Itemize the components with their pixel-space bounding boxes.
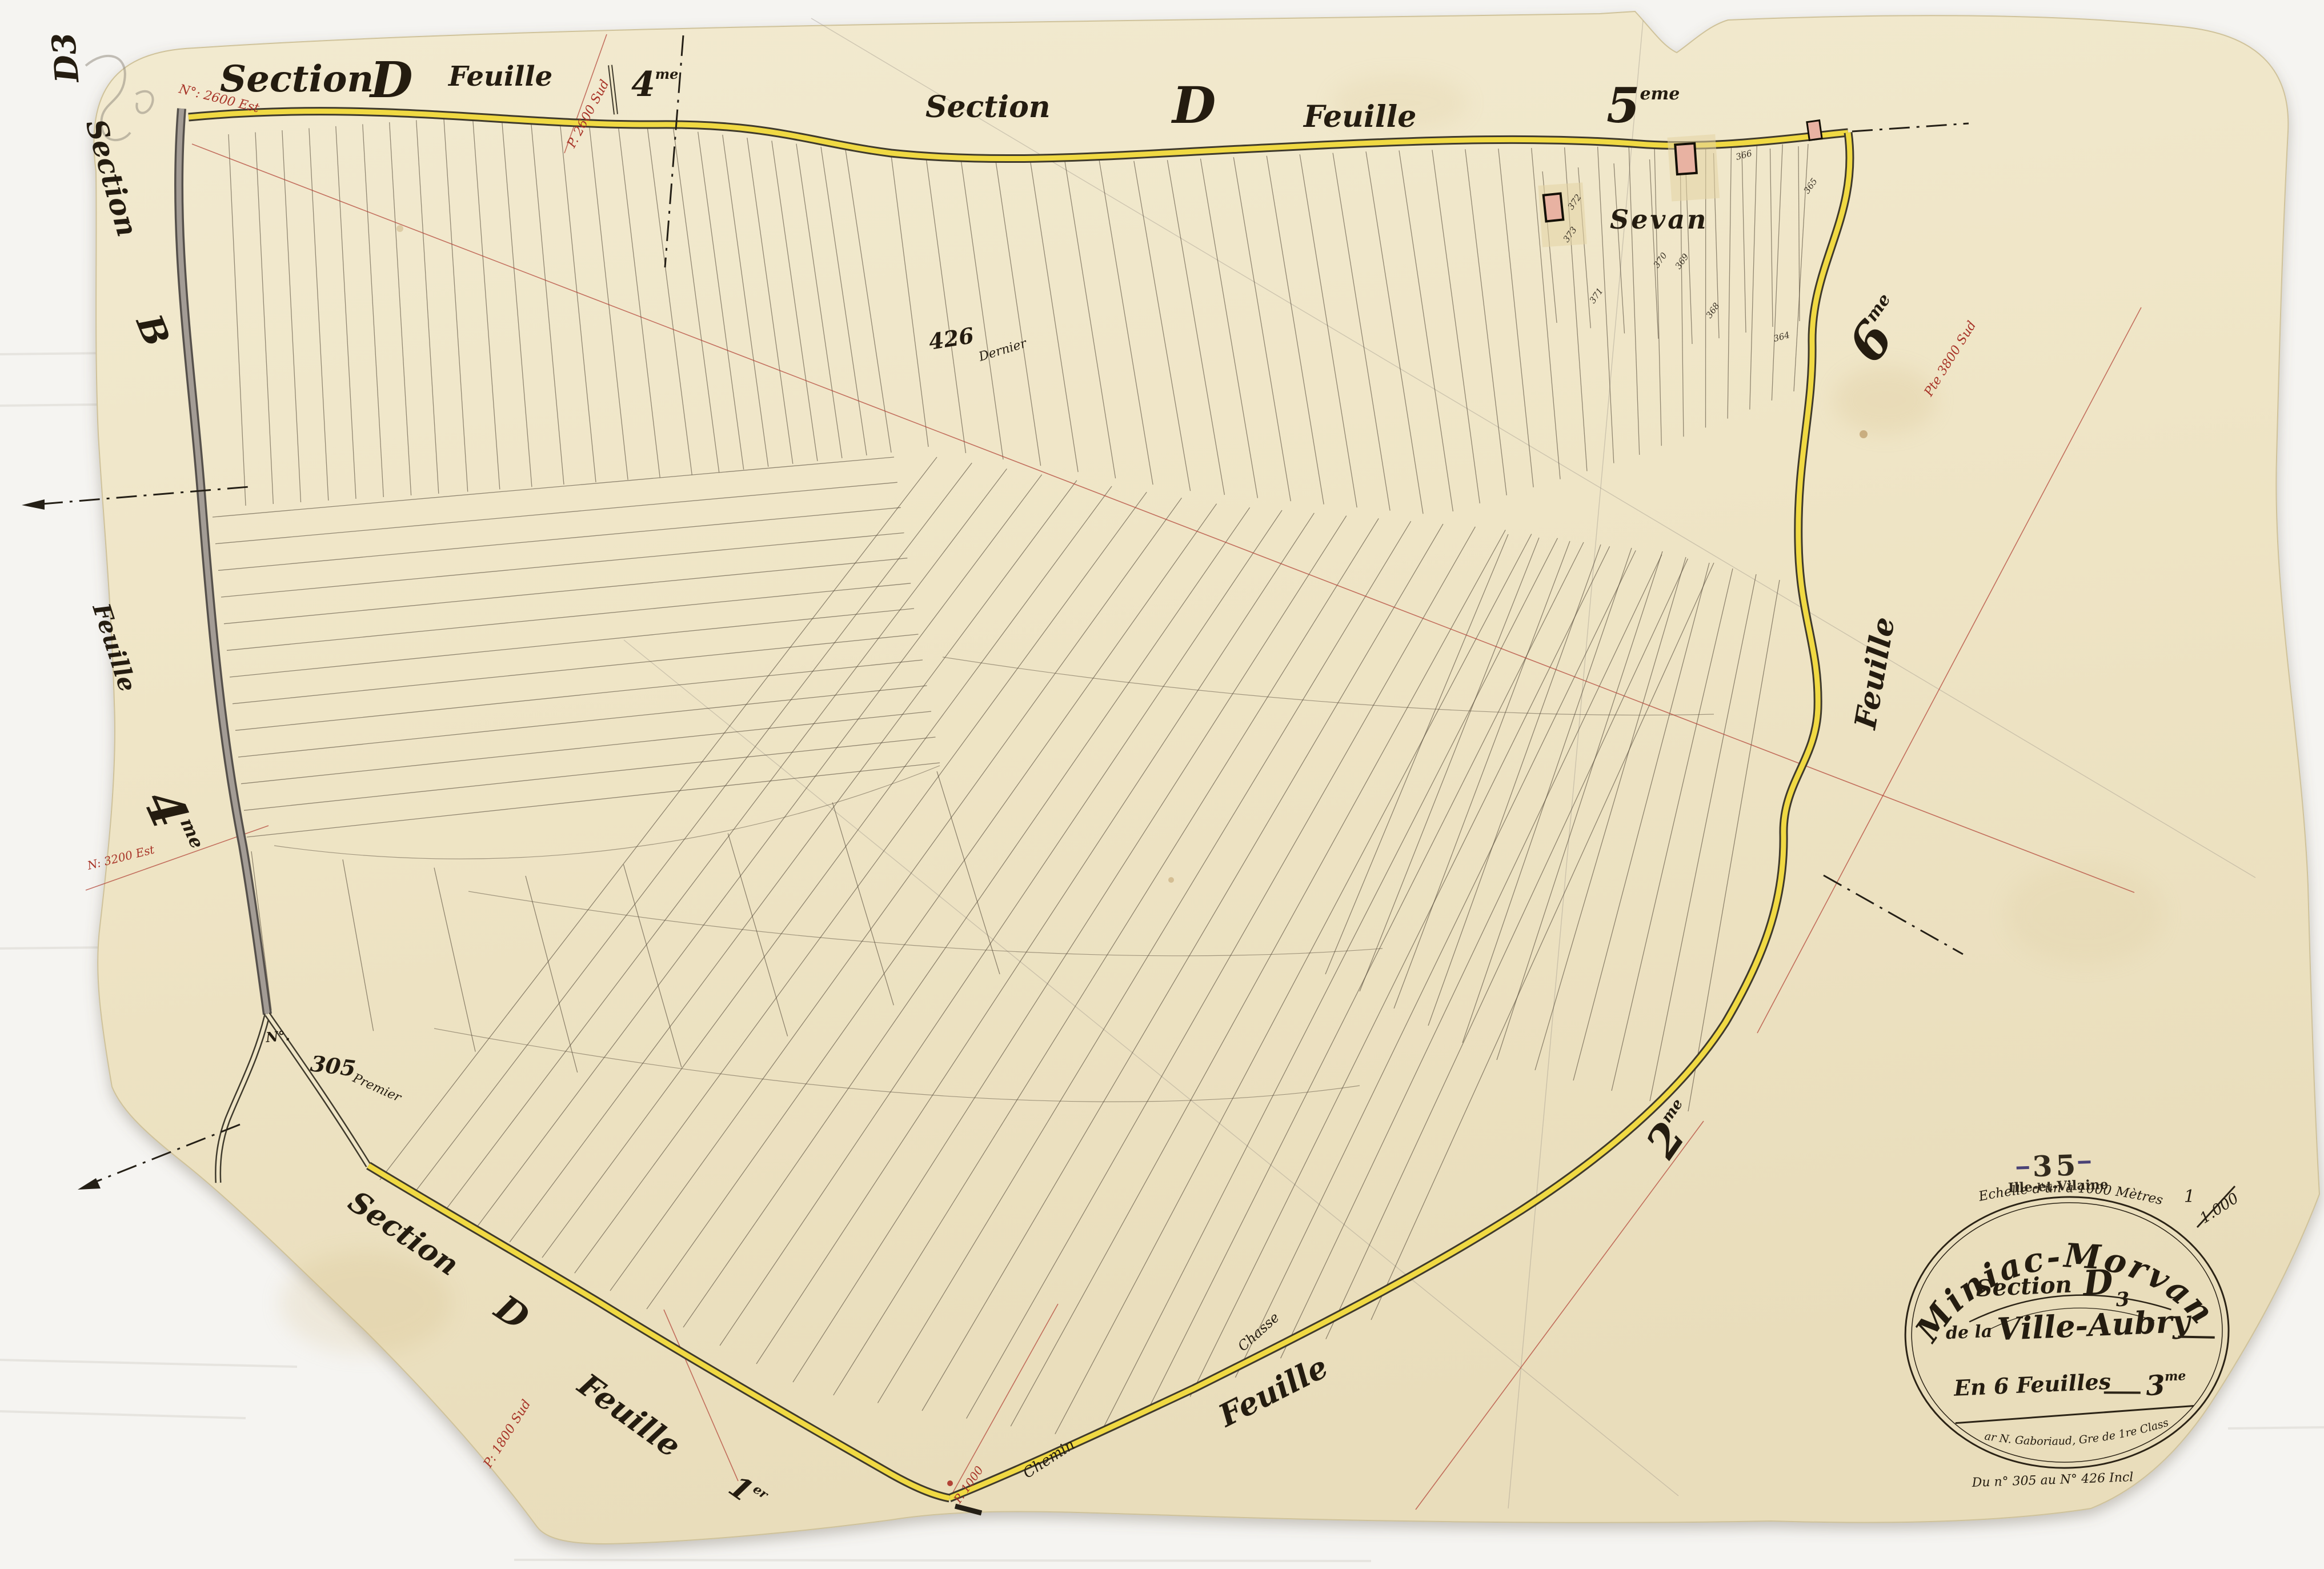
cadastral-map-sheet: D3 Section D Feuille 4me N°: 2600 Est P.… [0, 0, 2324, 1569]
parcel-first-number: 305 [309, 1050, 357, 1081]
stamp-dash [2078, 1162, 2090, 1163]
stamp-dash [2017, 1167, 2029, 1168]
limit-arrowhead [22, 499, 45, 510]
scanned-map-page: D3 Section D Feuille 4me N°: 2600 Est P.… [0, 0, 2324, 1569]
label-section-letter: D [368, 51, 413, 109]
corner-sheet-mark: D3 [45, 31, 87, 85]
cartouche-line2-prefix: de la [1945, 1322, 1993, 1344]
label-section: Section [220, 58, 374, 101]
label-feuille: Feuille [447, 61, 552, 93]
limit-arrowhead [78, 1178, 101, 1190]
village-name: Sevan [1610, 204, 1708, 235]
building [1675, 143, 1697, 174]
cartouche-section-label: Section [1976, 1271, 2073, 1302]
parcel-first-no: N°. [265, 1027, 291, 1046]
building [1807, 121, 1822, 141]
fraction-numerator: 1 [2184, 1187, 2195, 1207]
survey-point [947, 1480, 953, 1486]
cartouche-section-letter: D [2081, 1262, 2114, 1303]
label-section: Section [925, 90, 1051, 125]
building [1544, 194, 1564, 222]
label-section-letter: D [1171, 75, 1216, 135]
label-feuille: Feuille [1303, 99, 1416, 134]
